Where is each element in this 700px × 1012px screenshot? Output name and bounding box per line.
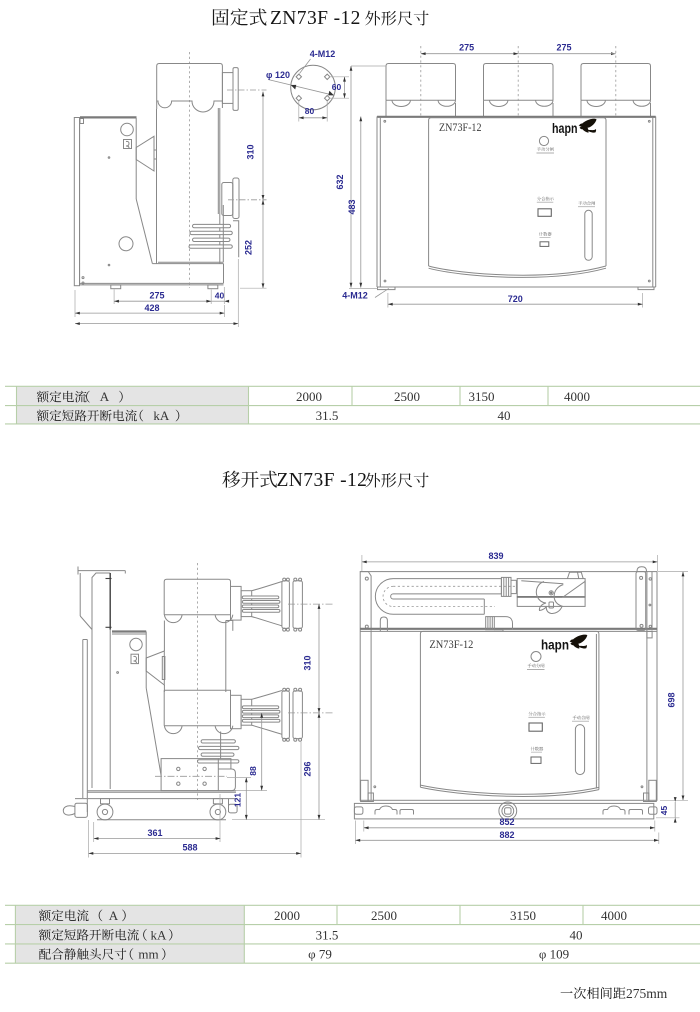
svg-text:4-M12: 4-M12 (310, 49, 336, 59)
svg-text:296: 296 (303, 761, 313, 776)
svg-text:275: 275 (459, 43, 474, 53)
svg-text:φ 79: φ 79 (308, 947, 332, 962)
svg-text:275mm: 275mm (626, 986, 668, 1001)
svg-text:428: 428 (144, 303, 159, 313)
svg-text:2500: 2500 (371, 908, 397, 923)
svg-text:ZN73F-12: ZN73F-12 (439, 120, 482, 134)
svg-text:275: 275 (149, 291, 164, 301)
svg-text:2000: 2000 (274, 908, 300, 923)
svg-text:252: 252 (244, 240, 254, 255)
svg-text:88: 88 (248, 766, 258, 776)
svg-text:31.5: 31.5 (316, 927, 339, 942)
svg-text:45: 45 (659, 806, 669, 816)
svg-text:882: 882 (499, 830, 514, 840)
svg-text:hapn: hapn (552, 120, 578, 136)
svg-text:ZN73F -12: ZN73F -12 (277, 470, 368, 491)
svg-text:4000: 4000 (601, 908, 627, 923)
svg-text:40: 40 (215, 290, 225, 300)
svg-text:588: 588 (182, 843, 197, 853)
svg-text:60: 60 (332, 82, 342, 92)
svg-text:kA: kA (153, 408, 170, 423)
svg-text:3150: 3150 (469, 389, 495, 404)
svg-text:40: 40 (498, 408, 511, 423)
svg-text:720: 720 (508, 294, 523, 304)
svg-text:31.5: 31.5 (316, 408, 339, 423)
svg-text:kA: kA (151, 927, 168, 942)
svg-text:φ 120: φ 120 (266, 70, 290, 80)
svg-text:3150: 3150 (510, 908, 536, 923)
svg-text:2000: 2000 (296, 389, 322, 404)
svg-text:A: A (100, 389, 110, 404)
svg-text:4000: 4000 (564, 389, 590, 404)
svg-text:632: 632 (335, 174, 345, 189)
svg-text:361: 361 (147, 828, 162, 838)
svg-text:mm: mm (138, 947, 158, 962)
svg-text:483: 483 (347, 199, 357, 214)
svg-text:275: 275 (556, 43, 571, 53)
svg-text:839: 839 (488, 551, 503, 561)
svg-text:4-M12: 4-M12 (342, 291, 368, 301)
svg-text:ZN73F -12: ZN73F -12 (270, 8, 361, 29)
svg-text:hapn: hapn (541, 636, 569, 652)
svg-text:40: 40 (570, 927, 583, 942)
svg-text:2500: 2500 (394, 389, 420, 404)
svg-text:121: 121 (233, 793, 243, 807)
svg-text:310: 310 (246, 144, 256, 159)
svg-text:698: 698 (667, 692, 677, 707)
svg-text:ZN73F-12: ZN73F-12 (429, 639, 473, 651)
svg-text:80: 80 (305, 106, 315, 116)
svg-text:310: 310 (303, 655, 313, 670)
svg-text:φ 109: φ 109 (539, 947, 569, 962)
svg-text:A: A (109, 908, 119, 923)
svg-text:852: 852 (499, 817, 514, 827)
